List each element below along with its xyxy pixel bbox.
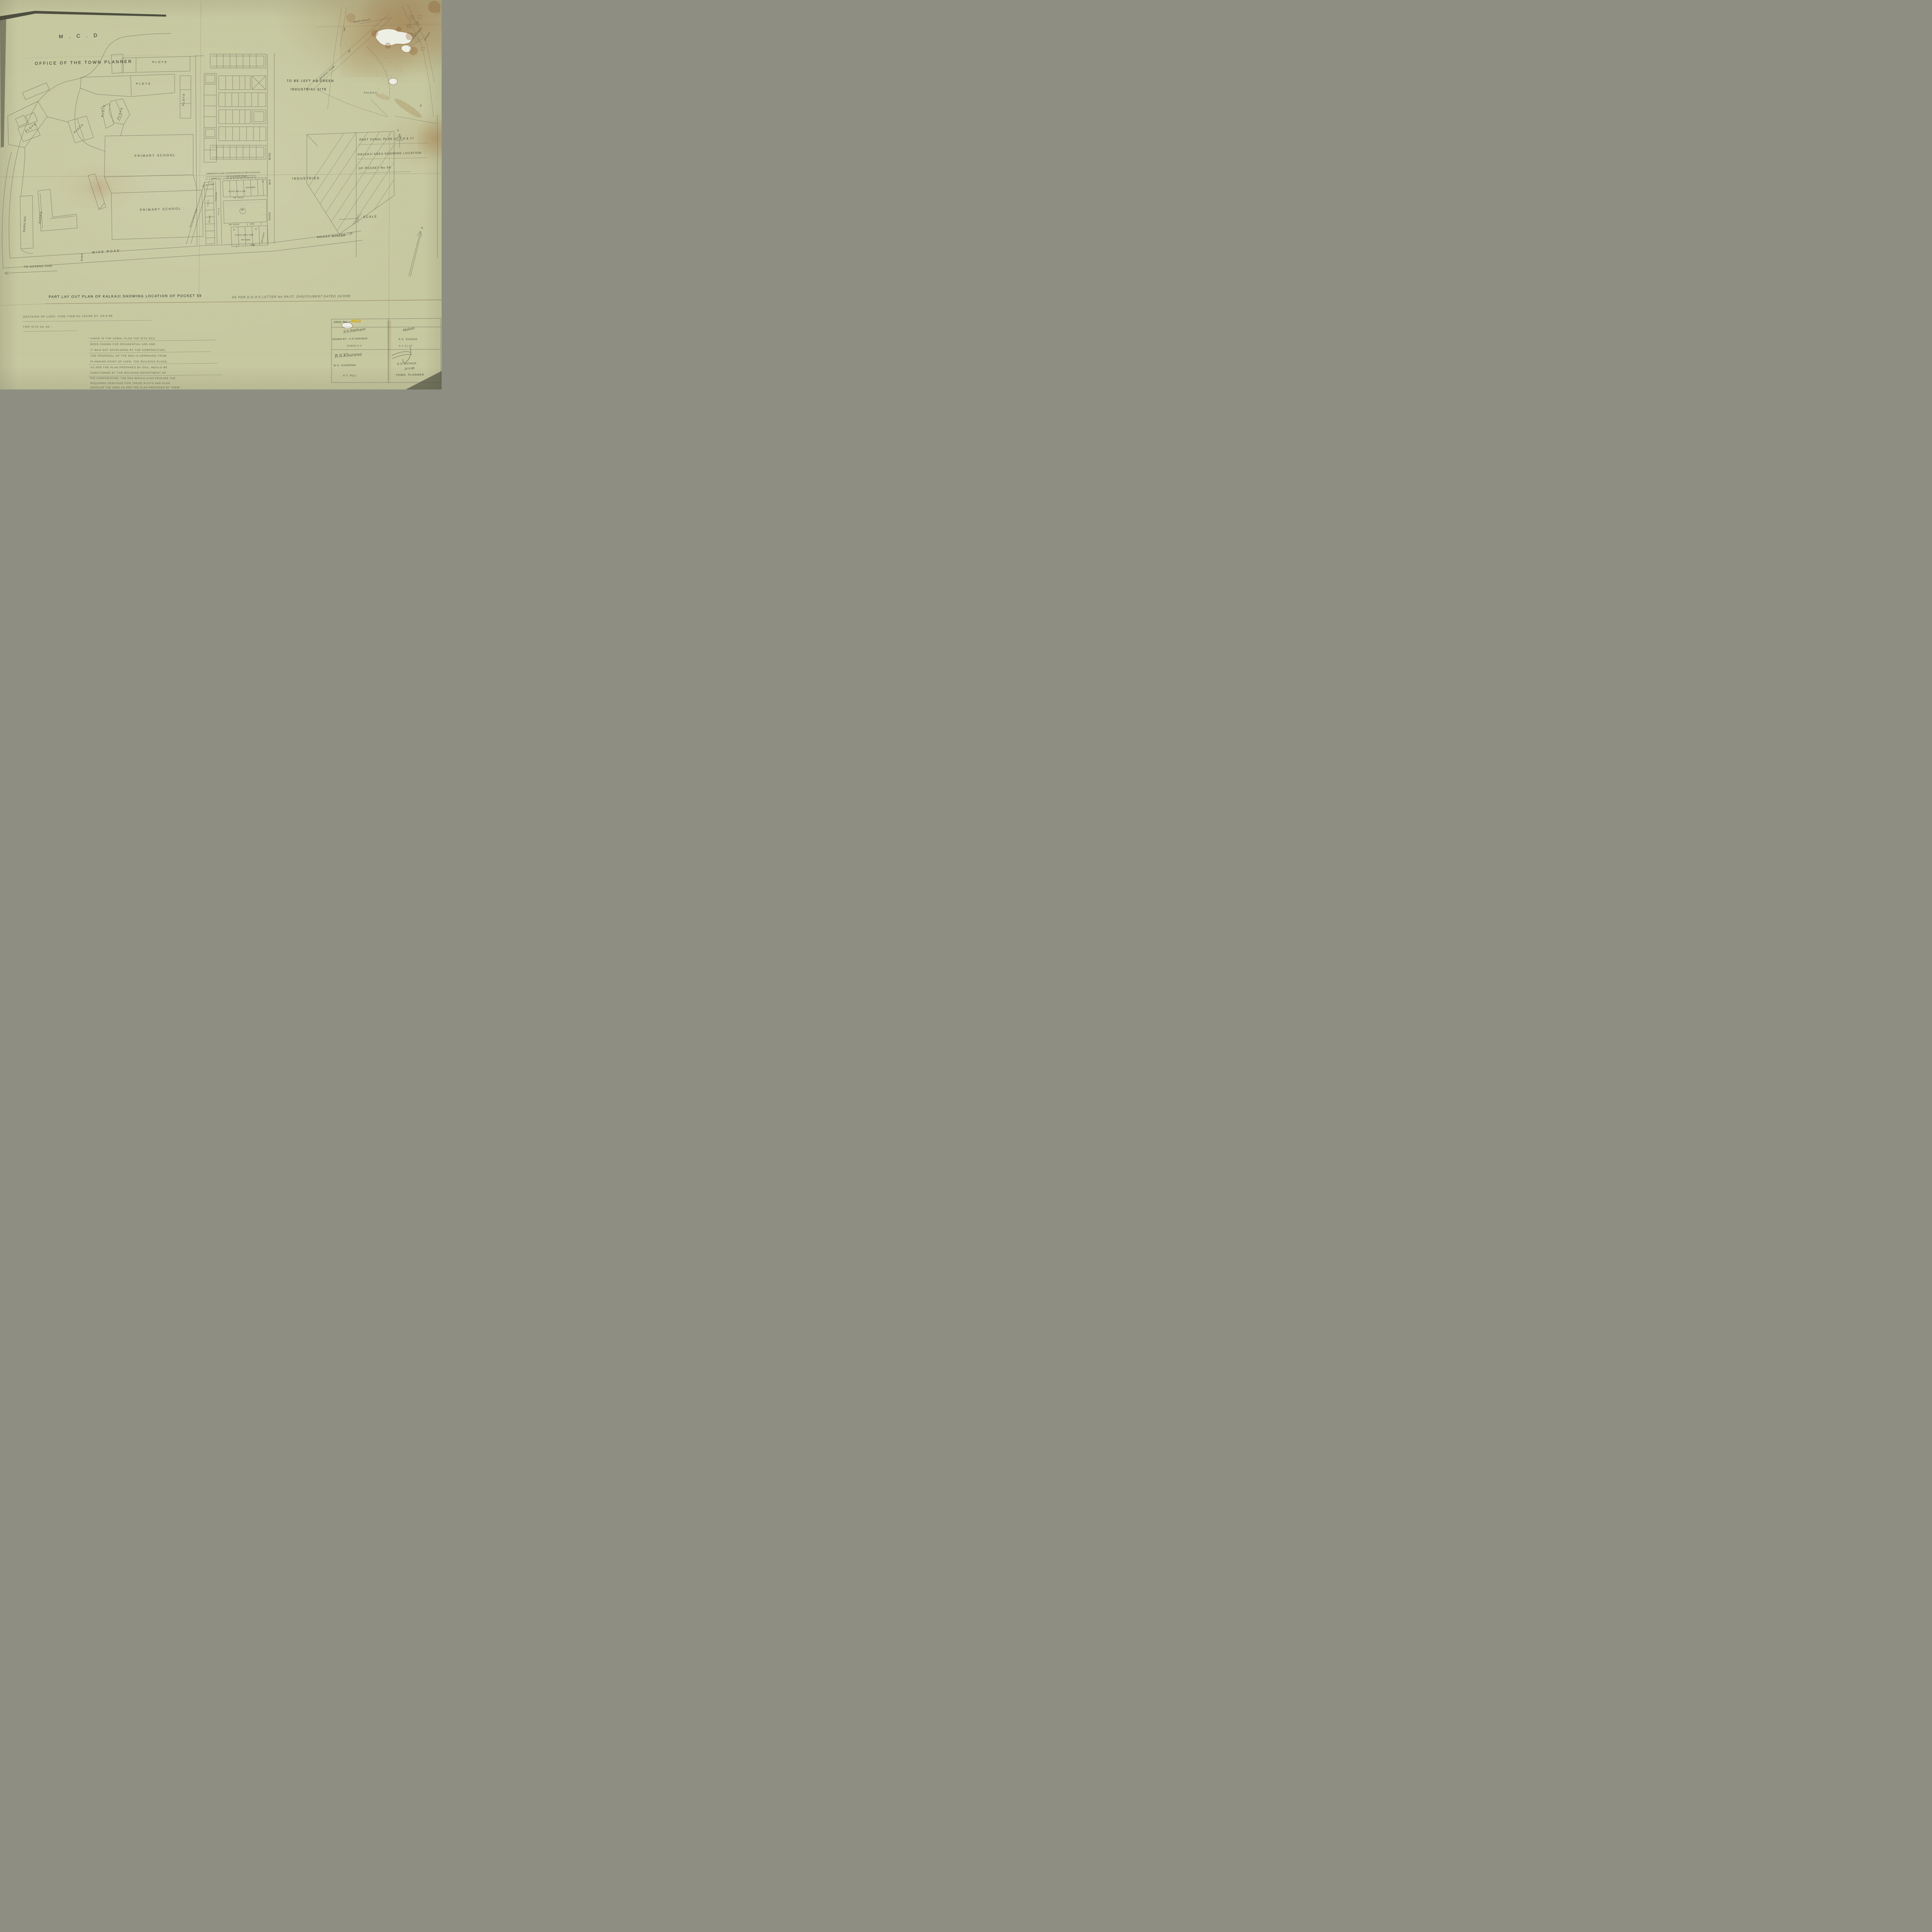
drawing-sheet: M . C . D OFFICE OF THE TOWN PLANNER PLO… (0, 0, 442, 389)
north-arrow-small (396, 134, 403, 148)
govind-puri-arrow (5, 271, 57, 275)
rust-speckles (346, 1, 440, 120)
label-plots-5: PLOTS (182, 93, 185, 106)
pocket-left-column (204, 182, 215, 244)
label-green-note-2: INDUSTRIAL SITE (291, 88, 327, 91)
decision-body-0: " SINCE IN THE ZONAL PLAN THE SITE HAS (88, 338, 155, 340)
pocket-plots-9x18: PLOTS 9M X 18M (229, 190, 246, 192)
pocket-area-171950: 171.950 SQM (215, 192, 217, 202)
pocket-road-v-small: ROAD (218, 207, 220, 215)
officer1-role: A.T. P(L) (343, 375, 356, 378)
left-connector-roads (21, 55, 204, 245)
pocket-road-3m-a: 3M ROAD (233, 197, 244, 199)
label-plots-2: PLOTS (136, 82, 151, 85)
org-title: M . C . D (59, 32, 100, 39)
plan-linework (0, 0, 442, 389)
decision-body-5: AS PER THE PLAN PREPARED BY DDA, WOULD B… (90, 367, 168, 369)
label-vroad-wide: WIDE (269, 152, 271, 160)
pocket-plots-12x25: PLOTS 12M X 25M (235, 235, 253, 237)
officer2-role: TOWN. PLANNER (396, 374, 424, 377)
decision-body-2: IT WAS NOT DEVELOPED BY THE CORPORATION, (90, 349, 166, 352)
label-vroad-road: ROAD (269, 212, 271, 220)
decision-body-6: SANCTIONED BY THE BUILDING DEPARTMENT OF (90, 372, 167, 375)
label-scale: SCALE (363, 215, 377, 219)
grid-top-block (210, 54, 266, 68)
label-vroad-width: 50'-0" (269, 179, 272, 185)
pocket-road-3m-b: 3M ROAD (229, 224, 240, 226)
drawn-by-role: D/MAN G II (347, 345, 362, 347)
decision-body-8: REQUIRED SERVICES FOR THESE PLOTS AND AL… (90, 383, 170, 385)
decision-body-4: PLANNING POINT OF VIEW. THE BUILDING PLA… (90, 361, 168, 364)
crease-lines (0, 2, 442, 385)
decision-body-9: DEVELOP THE AREA AS PER THE PLAN PREPARE… (90, 387, 181, 389)
signature-dd-mathur (392, 346, 412, 362)
school-blocks (104, 134, 203, 240)
drg-no-label: DRG. No. (334, 321, 349, 324)
road-left-boundary (2, 33, 171, 267)
scale-mark (339, 213, 362, 224)
pocket-dim-12m: 12M (202, 185, 204, 188)
pocket-area-300: 300 SQM (241, 240, 250, 241)
checker-role: A.A (L) IV (399, 345, 413, 347)
decision-body-7: THE CORPORATION. THE DDA WOULD ALSO PROV… (90, 378, 176, 380)
pocket-plots-row (223, 179, 267, 197)
parking-shops (20, 174, 106, 253)
zonal-title-line3: OF POCKET No 59 (359, 166, 391, 170)
checker-name: K.S. SAXENA (399, 338, 417, 341)
inset-rw: R/W (344, 27, 346, 31)
pocket-dim-136: 13.6M (250, 223, 254, 225)
pocket-plot-15: 15 (255, 228, 257, 230)
inset-tiny-pl: P.L (407, 26, 410, 27)
label-green-note-1: TO BE LEFT AS GREEN (287, 80, 334, 83)
grid-rows (210, 76, 266, 159)
pocket-dim-105: 10.5M (250, 244, 255, 246)
decision-body-1: BEEN SHOWN FOR RESIDENTIAL USE AND (90, 344, 155, 346)
inset-kalkaji: KALKAJI (364, 92, 378, 94)
decision-line2: FOR SITE No 59 :- (23, 326, 53, 329)
decision-body-3: THE PROPOSAL OF THE DDA IS APPROVED FROM (90, 355, 167, 358)
torn-paper-patches (342, 29, 413, 329)
inset-tiny-h: H (410, 17, 412, 18)
officer1-name: B.S. KHURANA (334, 364, 356, 367)
plots-blocks (8, 54, 191, 148)
north-letter-small: N (397, 130, 399, 132)
road-wide-bottom (2, 231, 362, 268)
north-arrow-big (409, 231, 422, 277)
label-industries: INDUSTRIES (292, 177, 320, 180)
label-plots-1: PLOTS (152, 61, 168, 64)
pencil-main (2, 33, 441, 383)
inset-tiny-lm1: L.M (415, 22, 418, 24)
pocket-road-1371: 13.71 M WIDE ROAD (226, 175, 247, 177)
inset-dots (378, 58, 419, 99)
north-letter-big: N (421, 227, 423, 230)
drg-no-value: 4059 (351, 320, 362, 324)
pocket-plot-16: 16 (262, 181, 264, 182)
pocket-plot-18: 18 (233, 229, 235, 231)
inset-tiny-lm2: L.M (413, 34, 415, 36)
pocket-no-59: 59 (241, 209, 244, 211)
